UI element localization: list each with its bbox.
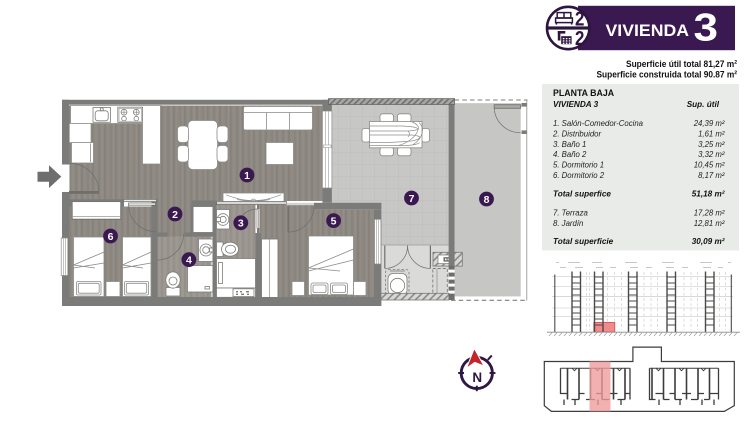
svg-text:51,18 m²: 51,18 m² [692,190,725,199]
svg-text:1. Salón-Comedor-Cocina: 1. Salón-Comedor-Cocina [553,119,644,128]
svg-text:8,17 m²: 8,17 m² [698,171,725,180]
svg-text:8. Jardín: 8. Jardín [553,219,583,228]
svg-text:Total superfice: Total superfice [553,190,611,199]
svg-text:1: 1 [244,170,250,182]
svg-text:3,25 m²: 3,25 m² [698,140,725,149]
svg-text:5. Dormitorio 1: 5. Dormitorio 1 [553,161,604,170]
svg-text:17,28 m²: 17,28 m² [694,209,725,218]
svg-text:6. Dormitorio 2: 6. Dormitorio 2 [553,171,605,180]
svg-text:3: 3 [694,7,719,50]
svg-text:2: 2 [172,209,178,221]
svg-text:7: 7 [409,193,415,205]
svg-text:Superficie útil total 81,27 m²: Superficie útil total 81,27 m² [626,59,737,69]
svg-text:6: 6 [108,231,114,243]
svg-text:30,09 m²: 30,09 m² [692,237,725,246]
svg-text:10,45 m²: 10,45 m² [694,161,725,170]
svg-text:PLANTA BAJA: PLANTA BAJA [553,88,615,98]
svg-text:Total superficie: Total superficie [553,237,614,246]
svg-text:5: 5 [331,215,337,227]
svg-text:Sup. útil: Sup. útil [687,100,720,109]
svg-text:7. Terraza: 7. Terraza [553,209,588,218]
svg-text:Superficie construida total 90: Superficie construida total 90.87 m² [597,69,738,79]
svg-text:VIVIENDA: VIVIENDA [606,22,690,40]
svg-text:4: 4 [186,255,192,267]
svg-text:2. Distribuidor: 2. Distribuidor [552,129,602,138]
svg-text:VIVIENDA 3: VIVIENDA 3 [553,100,599,109]
svg-text:12,81 m²: 12,81 m² [694,219,725,228]
svg-text:3. Baño 1: 3. Baño 1 [553,140,586,149]
svg-text:3,32 m²: 3,32 m² [698,150,725,159]
svg-text:8: 8 [484,194,490,206]
svg-text:24,39 m²: 24,39 m² [693,119,725,128]
svg-text:N: N [472,370,482,385]
svg-text:3: 3 [238,218,244,230]
svg-text:4. Baño 2: 4. Baño 2 [553,150,587,159]
svg-text:1,61 m²: 1,61 m² [698,129,725,138]
svg-text:2: 2 [575,28,584,50]
